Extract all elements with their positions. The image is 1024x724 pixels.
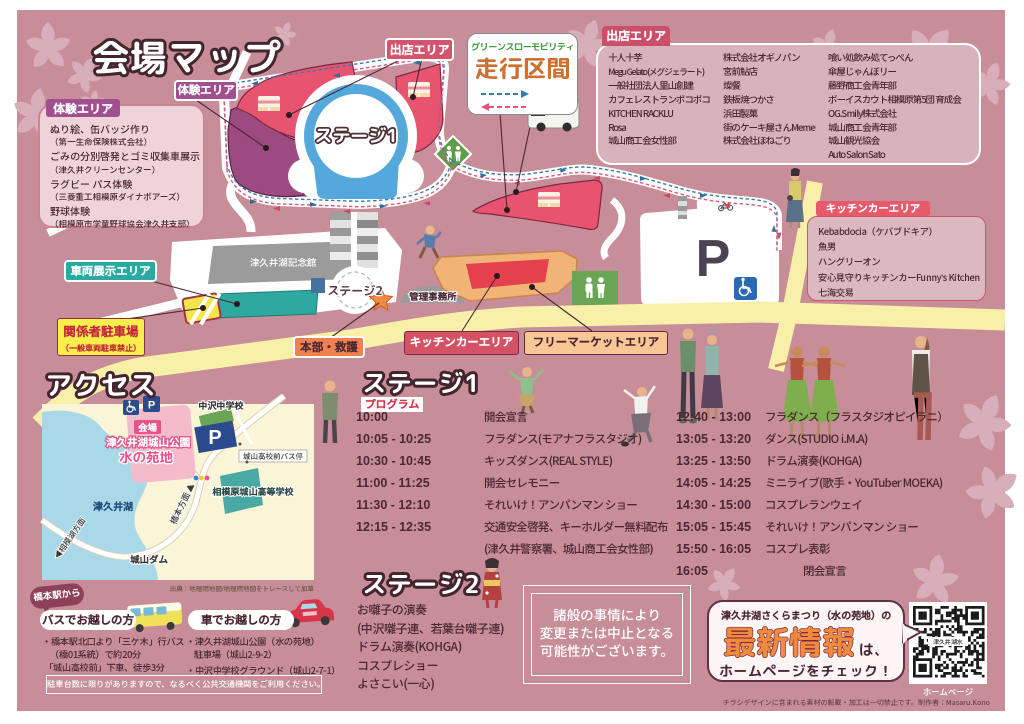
svg-text:ステージ2: ステージ2 [327, 282, 383, 299]
svg-text:ステージ1: ステージ1 [314, 123, 398, 148]
svg-text:P: P [696, 230, 731, 288]
svg-text:最新情報: 最新情報 [723, 619, 855, 663]
svg-text:会場: 会場 [138, 420, 158, 434]
svg-text:ステージ2: ステージ2 [362, 567, 481, 601]
svg-text:管理事務所: 管理事務所 [409, 289, 458, 303]
svg-text:城山高校前バス停: 城山高校前バス停 [243, 451, 303, 462]
svg-text:中沢中学校: 中沢中学校 [198, 399, 244, 412]
svg-text:水の苑地: 水の苑地 [119, 448, 173, 467]
svg-text:会場マップ: 会場マップ [92, 31, 282, 83]
svg-text:アクセス: アクセス [45, 366, 157, 404]
svg-text:津久井湖: 津久井湖 [93, 498, 133, 513]
svg-text:は、: は、 [859, 639, 889, 660]
svg-text:津久井湖水: 津久井湖水 [933, 637, 963, 646]
svg-text:城山ダム: 城山ダム [129, 552, 169, 566]
svg-text:ステージ1: ステージ1 [362, 366, 481, 400]
svg-text:P: P [208, 427, 221, 449]
svg-text:津久井湖記念館: 津久井湖記念館 [250, 255, 317, 269]
svg-text:相模原城山高等学校: 相模原城山高等学校 [212, 485, 294, 498]
